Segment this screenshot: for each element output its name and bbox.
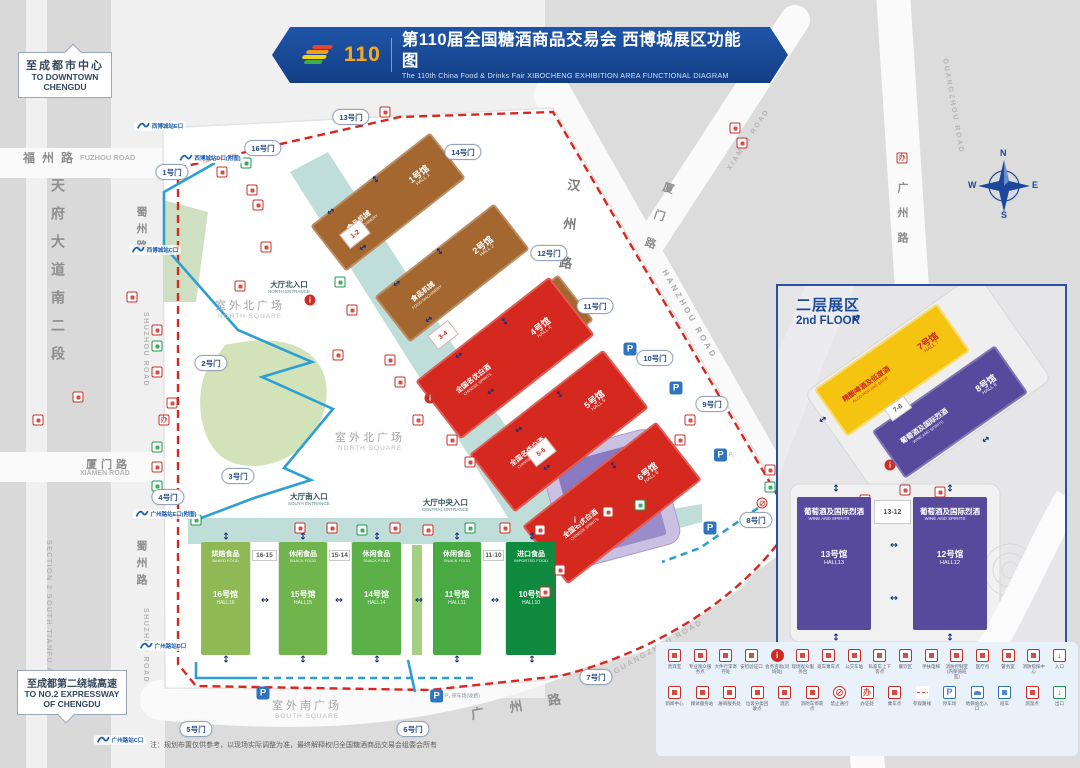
legend-glyph [1027,649,1040,662]
legend-panel: 贵宾室 专业观众服务点 大件行李寄存处 安检验证口 [656,642,1078,756]
legend-glyph [745,649,758,662]
flow-arrow-icon [222,655,230,666]
facility-icon [555,565,566,576]
parking-marker: P [624,343,637,356]
facility-icon [447,435,458,446]
visitor-service-badge-icon: 专业观众服务点 [688,649,713,680]
metro-entrance-icon: 地铁站出入口 [965,686,990,711]
gate-pill: 1号门 [155,164,188,180]
legend-glyph [806,686,819,699]
compass-e: E [1032,180,1038,190]
road-label-fuzhou: 福州路 [23,149,80,166]
medical-point-icon: 医疗点 [970,649,995,680]
dining-area-icon: 餐饮区 [893,649,918,680]
exhibition-map: 福州路 FUZHOU ROAD 天府大道南二段 SECTION 2 SOUTH … [0,0,1080,768]
road-label-fuzhou-en: FUZHOU ROAD [80,153,135,162]
gate-pill: 2号门 [194,355,227,371]
north-entrance-label: 大厅北入口NORTH ENTRANCE [268,280,310,294]
visit-route-icon: 参观路线 [910,686,935,711]
escalator-icon: 手扶电梯 [919,649,944,680]
compass-star-icon [972,152,1036,216]
waste-recycle-icon: 垃圾分类回收点 [745,686,770,711]
no-entry-icon: 禁止通行 [827,686,852,711]
facility-icon [167,398,178,409]
shuttle-bus-icon: 班车乘车点 [816,649,841,680]
gate-pill: 9号门 [695,396,728,412]
facility-icon [159,415,170,426]
facility-icon [765,465,776,476]
media-service-icon: 媒体服务站 [690,686,715,711]
facility-icon [73,392,84,403]
fire-control-room-icon: 消防控制室(内保值班室) [944,649,969,680]
hotel-icon: 酒店 [772,686,797,711]
metro-entrance-marker: 西博城站C口 [129,245,181,255]
legend-glyph [925,649,938,662]
road-label-shuzhou-s: 蜀州路 [133,540,149,591]
facility-icon [425,393,436,404]
entrance-icon: 入口 [1047,649,1072,680]
facility-icon [423,525,434,536]
facility-icon [395,377,406,388]
north-square-label-2: 室外北广场NORTH SQUARE [335,432,405,453]
metro-entrance-marker: 广州路站C口 [94,735,146,745]
press-center-icon: 新闻中心 [662,686,687,711]
road-xiamen-west [0,452,165,482]
compass-w: W [968,180,977,190]
facility-icon [127,292,138,303]
parking-p-icon: P [714,449,727,462]
hall-10: 进口食品IMPORTED FOOD 10号馆HALL10 [506,542,556,655]
metro-entrance-marker: 西博城站E口 [134,121,186,131]
banner-divider [391,38,392,72]
gate-pill: 10号门 [636,350,673,366]
flow-arrow-icon [413,596,424,604]
facility-icon [765,482,776,493]
fire-command-center-icon: 消防指挥中心 [1021,649,1046,680]
legend-glyph [1026,686,1039,699]
facility-icon [897,153,908,164]
gate-pill: 12号门 [530,245,567,261]
metro-logo-icon [136,510,149,518]
metro-entrance-marker: 广州路站E口(附图) [133,509,200,519]
metro-logo-icon [137,122,150,130]
compass-n: N [1000,148,1007,158]
facility-icon [380,107,391,118]
flow-arrow-icon [888,541,899,549]
coach-bus-icon: 班车 [992,686,1017,711]
facility-icon [675,435,686,446]
legend-glyph [1002,649,1015,662]
facility-icon [347,305,358,316]
hall-12: 葡萄酒及国际烈酒WINE AND SPIRITS 12号馆HALL12 [913,497,987,630]
facility-icon [327,523,338,534]
pickup-point-icon: 乘车点 [882,686,907,711]
parking-p-icon: P [624,343,637,356]
legend-glyph [1053,686,1066,699]
legend-glyph [971,686,984,699]
facility-icon [235,281,246,292]
facility-icon [603,507,614,518]
road-label-tianfu: 天府大道南二段 [48,178,68,374]
gate-pill: 7号门 [579,669,612,685]
flow-arrow-icon [888,594,899,602]
facility-icon [33,415,44,426]
to-expressway-box: 至成都第二绕城高速 TO NO.2 EXPRESSWAY OF CHENGDU [17,670,127,715]
facility-icon [335,277,346,288]
hall-13: 葡萄酒及国际烈酒WINE AND SPIRITS 13号馆HALL13 [797,497,871,630]
security-check-icon: 安检验证口 [739,649,764,680]
compass-s: S [1001,210,1007,220]
north-square-label: 室外北广场NORTH SQUARE [215,300,285,321]
metro-logo-icon [140,642,153,650]
parking-p-icon: P [704,522,717,535]
inset-road [990,498,1067,648]
south-square-label: 室外南广场SOUTH SQUARE [272,700,342,721]
compass-rose: N W E S [972,152,1036,216]
information-icon: 会务咨询(问询处) [765,649,790,680]
fair-logo-icon [302,43,336,67]
fire-truck-icon: 消防车停靠点 [800,686,825,711]
legend-glyph [899,649,912,662]
facility-icon [465,457,476,468]
hall-15: 休闲食品SNACK FOOD 15号馆HALL15 [279,542,327,655]
facility-icon [900,485,911,496]
gate-pill: 4号门 [151,489,184,505]
legend-glyph [1053,649,1066,662]
gate-pill: 14号门 [444,144,481,160]
facility-icon [152,462,163,473]
temperature-check-icon: 测温点 [1020,686,1045,711]
banner-title-zh: 第110届全国糖酒商品交易会 西博城展区功能图 [402,30,758,71]
gate-pill: 16号门 [244,140,281,156]
exhibitor-service-icon: 展商服务处 [717,686,742,711]
gate-pill: 13号门 [332,109,369,125]
facility-icon [413,415,424,426]
legend-glyph [916,686,929,699]
inset-title: 二层展区2nd FLOOR [796,298,860,327]
legend-glyph [723,686,736,699]
hall-11: 休闲食品SNACK FOOD 11号馆HALL11 [433,542,481,655]
legend-glyph [873,649,886,662]
metro-logo-icon [179,154,192,162]
facility-icon [253,200,264,211]
road-label-guangzhou-n: 广州路 [894,182,910,257]
title-banner: 110 第110届全国糖酒商品交易会 西博城展区功能图 The 110th Ch… [272,27,788,83]
flow-arrow-icon [528,655,536,666]
gate-pill: 3号门 [221,468,254,484]
central-entrance-label: 大厅中央入口CENTRAL ENTRANCE [422,498,469,512]
gate-pill: 11号门 [577,298,614,314]
connector-13-12: 13-12 [874,500,911,524]
parking-marker: P [257,687,270,700]
parking-p-icon: P [430,690,443,703]
parking-marker: P P₁ [714,449,734,462]
legend-glyph [719,649,732,662]
flow-arrow-icon [528,532,536,543]
flow-arrow-icon [832,484,840,495]
hall-14: 休闲食品SNACK FOOD 14号馆HALL14 [352,542,401,655]
legend-glyph [888,686,901,699]
facility-icon [390,523,401,534]
legend-glyph [833,686,846,699]
legend-row-2: 新闻中心 媒体服务站 展商服务处 垃圾分类回收点 [662,686,1072,711]
badge-office-icon: 办证处 [855,686,880,711]
edition-badge: 110 [344,43,381,67]
to-downtown-box: 至成都市中心 TO DOWNTOWN CHENGDU [18,52,112,98]
flow-arrow-icon [299,532,307,543]
metro-entrance-marker: 西博城站D口(附图) [176,153,243,163]
gate-pill: 5号门 [179,721,212,737]
facility-icon [357,525,368,536]
facility-icon [152,367,163,378]
road-label-shuzhou-n-en: SHUZHOU ROAD [142,312,149,387]
facility-icon [757,498,768,509]
legend-glyph [668,686,681,699]
legend-glyph [771,649,784,662]
gate-pill: 6号门 [396,721,429,737]
parking-marker: P [670,382,683,395]
flow-arrow-icon [259,596,270,604]
legend-glyph [976,649,989,662]
south-entrance-label: 大厅南入口SOUTH ENTRANCE [288,492,330,506]
metro-entrance-marker: 广州路站D口 [137,641,189,651]
car-dropoff-icon: 私家车上下客点 [867,649,892,680]
parking-marker: P [704,522,717,535]
flow-arrow-icon [222,532,230,543]
facility-icon [540,587,551,598]
parking-marker: P P₁ 停车场(收费) [430,690,480,703]
legend-glyph [950,649,963,662]
facility-icon [261,242,272,253]
facility-icon [305,295,316,306]
facility-icon [385,355,396,366]
legend-glyph [696,686,709,699]
legend-glyph [694,649,707,662]
flow-arrow-icon [946,484,954,495]
facility-icon [730,123,741,134]
gate-pill: 8号门 [739,512,772,528]
legend-glyph [822,649,835,662]
facility-icon [635,500,646,511]
facility-icon [570,515,581,526]
flow-arrow-icon [453,532,461,543]
legend-glyph [861,686,874,699]
legend-glyph [943,686,956,699]
police-office-icon: 警务室 [996,649,1021,680]
facility-icon [247,185,258,196]
flow-arrow-icon [373,532,381,543]
road-band-left [0,0,26,768]
flow-arrow-icon [453,655,461,666]
legend-glyph [668,649,681,662]
luggage-storage-icon: 大件行李寄存处 [713,649,738,680]
flow-arrow-icon [333,596,344,604]
legend-glyph [751,686,764,699]
parking-p-icon: P [257,687,270,700]
bus-station-icon: 公交车站 [842,649,867,680]
facility-icon [465,523,476,534]
legend-glyph [848,649,861,662]
metro-logo-icon [97,736,110,744]
legend-glyph [796,649,809,662]
parking-p-icon: P [670,382,683,395]
exit-icon: 出口 [1047,686,1072,711]
legend-row-1: 贵宾室 专业观众服务点 大件行李寄存处 安检验证口 [662,649,1072,680]
hall-16: 烘焙食品BAKED FOOD 16号馆HALL16 [201,542,250,655]
road-label-xiamen-w-en: XIAMEN ROAD [80,470,130,477]
legend-glyph [778,686,791,699]
flow-arrow-icon [373,655,381,666]
flow-arrow-icon [299,655,307,666]
facility-icon [152,442,163,453]
road-band-tianfu [47,0,111,768]
facility-icon [685,415,696,426]
banner-title-en: The 110th China Food & Drinks Fair XIBOC… [402,71,758,80]
facility-icon [217,167,228,178]
facility-icon [152,325,163,336]
disclaimer-note: 注：规划布置仅供参考，以现场实际调整为准，最终解释权归全国糖酒商品交易会组委会所… [150,740,495,750]
facility-icon [333,350,344,361]
facility-icon [737,138,748,149]
vip-room-icon: 贵宾室 [662,649,687,680]
parking-icon: 停车场 [937,686,962,711]
facility-icon [535,525,546,536]
facility-icon [152,341,163,352]
facility-icon [500,523,511,534]
flow-arrow-icon [489,596,500,604]
facility-icon [935,487,946,498]
visitor-service-desk-icon: 现场观众服务台 [790,649,815,680]
metro-logo-icon [132,246,145,254]
legend-glyph [998,686,1011,699]
